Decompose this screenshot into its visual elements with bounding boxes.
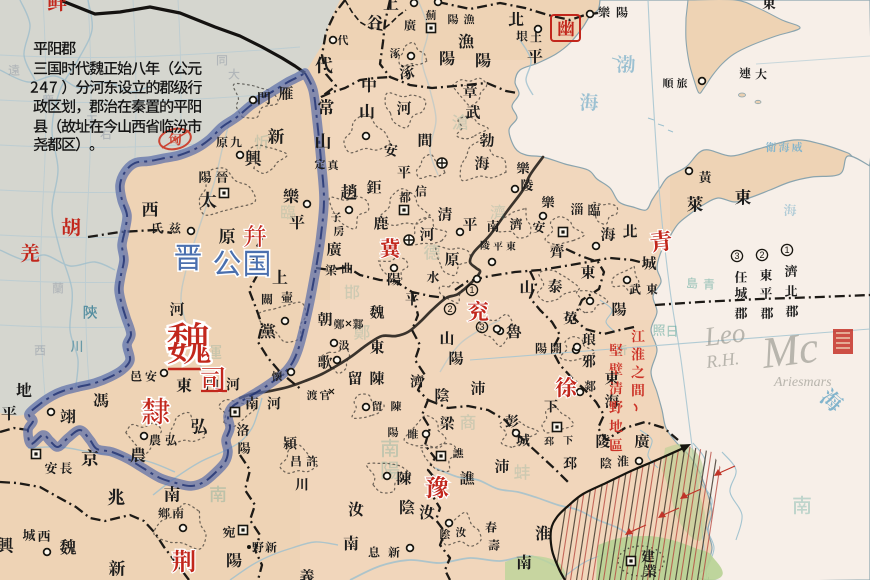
svg-text:1: 1 (784, 245, 789, 255)
svg-text:R.H.: R.H. (704, 348, 740, 372)
svg-text:Mc: Mc (758, 322, 821, 378)
svg-text:Ariesmars: Ariesmars (773, 375, 832, 390)
svg-text:2: 2 (447, 304, 452, 314)
svg-text:3: 3 (479, 322, 484, 332)
svg-text:3: 3 (734, 251, 739, 261)
svg-text:1: 1 (469, 285, 474, 295)
svg-text:Leo: Leo (702, 317, 747, 352)
svg-text:2: 2 (759, 250, 764, 260)
